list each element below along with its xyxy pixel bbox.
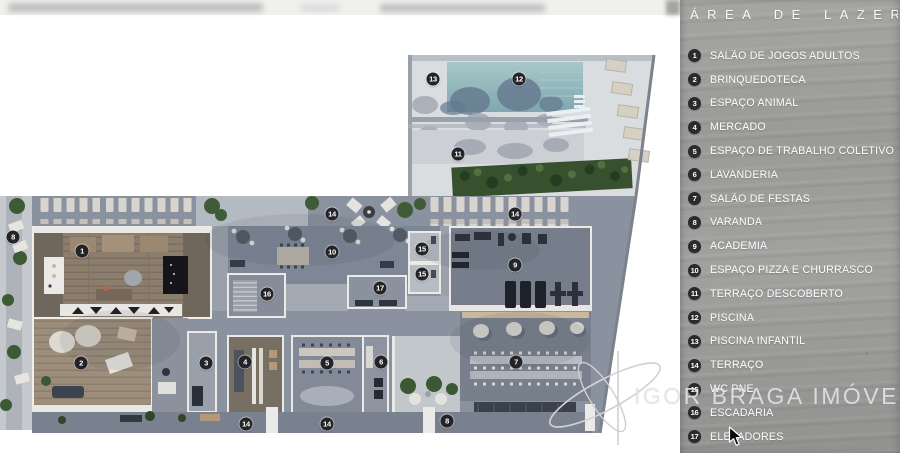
- legend-item-label: ACADEMIA: [710, 240, 767, 252]
- legend-item-label: VARANDA: [710, 216, 762, 228]
- legend-item-label: TERRAÇO: [710, 359, 764, 371]
- legend-item-label: MERCADO: [710, 121, 766, 133]
- legend-item: 6 LAVANDERIA: [688, 163, 898, 187]
- legend-item: 14 TERRAÇO: [688, 353, 898, 377]
- legend-item-label: TERRAÇO DESCOBERTO: [710, 288, 843, 300]
- legend-item-label: PISCINA: [710, 312, 754, 324]
- legend-item: 9 ACADEMIA: [688, 234, 898, 258]
- legend-item-label: SALÃO DE FESTAS: [710, 193, 810, 205]
- legend-item-label: BRINQUEDOTECA: [710, 74, 806, 86]
- legend-item-number-badge: 8: [688, 216, 701, 229]
- legend-item-number-badge: 12: [688, 311, 701, 324]
- watermark-text: IGOR BRAGA IMÓVEIS: [634, 383, 900, 410]
- legend-item: 1 SALÃO DE JOGOS ADULTOS: [688, 44, 898, 68]
- legend-item: 8 VARANDA: [688, 211, 898, 235]
- legend-item-label: ESPAÇO PIZZA E CHURRASCO: [710, 264, 873, 276]
- legend-item: 13 PISCINA INFANTIL: [688, 330, 898, 354]
- legend-item: 3 ESPAÇO ANIMAL: [688, 92, 898, 116]
- legend-item-label: ESPAÇO ANIMAL: [710, 97, 798, 109]
- legend-item-number-badge: 9: [688, 240, 701, 253]
- legend-item-label: LAVANDERIA: [710, 169, 778, 181]
- legend-item-number-badge: 11: [688, 287, 701, 300]
- legend-item: 12 PISCINA: [688, 306, 898, 330]
- legend-item-label: ESPAÇO DE TRABALHO COLETIVO: [710, 145, 894, 157]
- legend-item-number-badge: 1: [688, 49, 701, 62]
- legend-item-number-badge: 3: [688, 97, 701, 110]
- legend-item-number-badge: 2: [688, 73, 701, 86]
- legend-title: ÁREA DE LAZER: [690, 7, 898, 22]
- legend-item-number-badge: 5: [688, 145, 701, 158]
- legend-item-number-badge: 6: [688, 168, 701, 181]
- legend-item-label: PISCINA INFANTIL: [710, 335, 805, 347]
- legend-item-number-badge: 4: [688, 121, 701, 134]
- legend-item: 4 MERCADO: [688, 115, 898, 139]
- legend-item: 11 TERRAÇO DESCOBERTO: [688, 282, 898, 306]
- legend-item: 17 ELEVADORES: [688, 425, 898, 449]
- legend-item: 7 SALÃO DE FESTAS: [688, 187, 898, 211]
- legend-item: 10 ESPAÇO PIZZA E CHURRASCO: [688, 258, 898, 282]
- legend-item-label: ELEVADORES: [710, 431, 784, 443]
- legend-item-number-badge: 7: [688, 192, 701, 205]
- screenshot-stage: 8 1 14 14 10 16 17 15 15 9 2 3 4 5 6: [0, 0, 900, 453]
- legend-item-label: SALÃO DE JOGOS ADULTOS: [710, 50, 860, 62]
- legend-item: 5 ESPAÇO DE TRABALHO COLETIVO: [688, 139, 898, 163]
- mouse-cursor: [728, 426, 744, 447]
- legend-item-number-badge: 10: [688, 264, 701, 277]
- legend-item: 2 BRINQUEDOTECA: [688, 68, 898, 92]
